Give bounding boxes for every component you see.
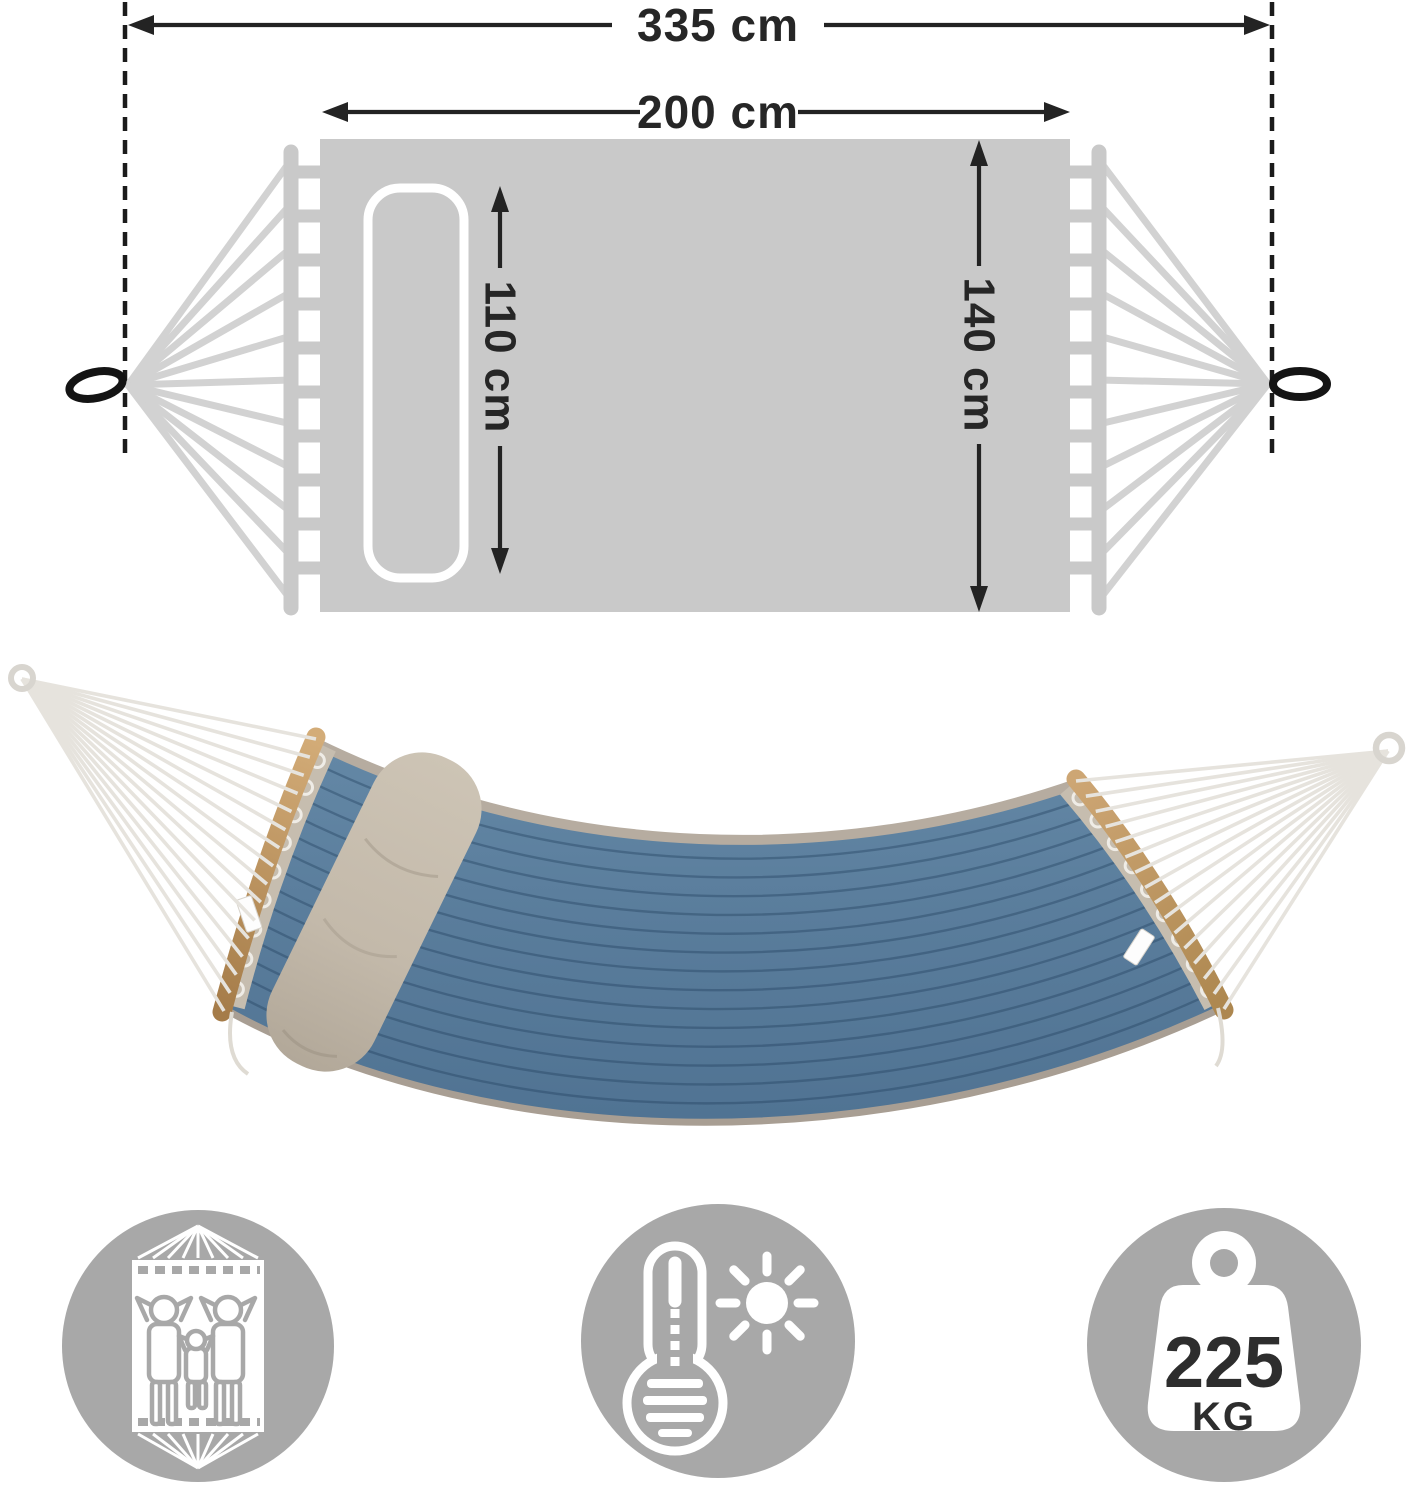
bed-length-dimension: 200 cm [322, 86, 1070, 138]
total-length-dimension: 335 cm [128, 0, 1270, 51]
total-length-label: 335 cm [637, 0, 799, 51]
hammock-infographic: 335 cm 200 cm 110 cm 140 cm [0, 0, 1410, 1499]
rope-fan-left [128, 160, 291, 600]
capacity-feature [62, 1210, 334, 1482]
hammock-photo [11, 667, 1402, 1122]
max-load-value: 225 [1164, 1323, 1284, 1403]
max-load-unit: KG [1192, 1395, 1256, 1439]
hanging-ring-left-photo [11, 667, 33, 689]
bed-width-label: 140 cm [955, 277, 1004, 432]
pillow-length-label: 110 cm [476, 281, 525, 434]
weather-circle [581, 1204, 855, 1478]
hanging-ring-left-topview [67, 367, 125, 404]
family-in-hammock-icon [132, 1226, 264, 1468]
hammock-top-view [67, 139, 1327, 612]
infographic-scene: 335 cm 200 cm 110 cm 140 cm [0, 0, 1410, 1499]
max-load-feature: 225 KG [1087, 1208, 1361, 1482]
weather-feature [581, 1204, 855, 1478]
feature-icons: 225 KG [62, 1204, 1361, 1482]
rope-tail-right [1216, 1008, 1223, 1066]
hanging-ring-right-topview [1273, 371, 1327, 397]
bed-length-label: 200 cm [637, 86, 799, 138]
pillow-topview [368, 188, 464, 578]
rope-fan-right [1099, 160, 1268, 600]
dimension-diagram: 335 cm 200 cm 110 cm 140 cm [67, 0, 1327, 612]
hanging-ring-right-photo [1376, 735, 1402, 761]
